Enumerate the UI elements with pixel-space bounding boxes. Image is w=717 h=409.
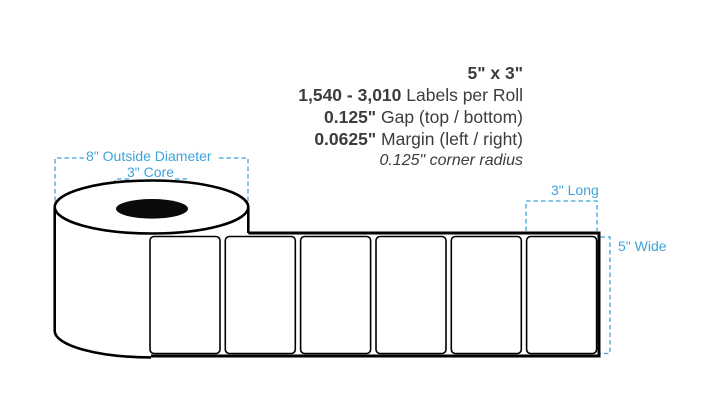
spec-margin: 0.0625" Margin (left / right): [298, 128, 523, 150]
dimension-label-wide: 5" Wide: [618, 238, 667, 254]
dim-wide-bracket: [601, 237, 611, 354]
label-roll-diagram: 5" x 3" 1,540 - 3,010 Labels per Roll 0.…: [0, 0, 717, 409]
labels-per-roll-value: 1,540 - 3,010: [298, 85, 401, 105]
size-value: 5" x 3": [467, 63, 523, 83]
spec-size: 5" x 3": [298, 62, 523, 84]
label-rect: [301, 237, 371, 354]
label-rect: [225, 237, 295, 354]
label-rect: [451, 237, 521, 354]
dimension-label-long: 3" Long: [551, 182, 599, 198]
labels-per-roll-label: Labels per Roll: [406, 85, 523, 105]
dimension-label-core: 3" Core: [127, 164, 174, 180]
margin-label: Margin (left / right): [381, 129, 523, 149]
spec-corner-radius: 0.125" corner radius: [298, 150, 523, 171]
gap-value: 0.125": [324, 107, 376, 127]
roll-bottom-curve: [55, 331, 151, 357]
spec-labels-per-roll: 1,540 - 3,010 Labels per Roll: [298, 84, 523, 106]
margin-value: 0.0625": [314, 129, 376, 149]
gap-label: Gap (top / bottom): [381, 107, 523, 127]
label-rect: [376, 237, 446, 354]
dim-long-bracket: [526, 201, 597, 231]
spec-block: 5" x 3" 1,540 - 3,010 Labels per Roll 0.…: [298, 62, 523, 171]
roll-core: [116, 199, 188, 219]
dimension-label-outside-diameter: 8" Outside Diameter: [86, 148, 212, 164]
label-rect: [527, 237, 597, 354]
spec-gap: 0.125" Gap (top / bottom): [298, 106, 523, 128]
label-rect: [150, 237, 220, 354]
